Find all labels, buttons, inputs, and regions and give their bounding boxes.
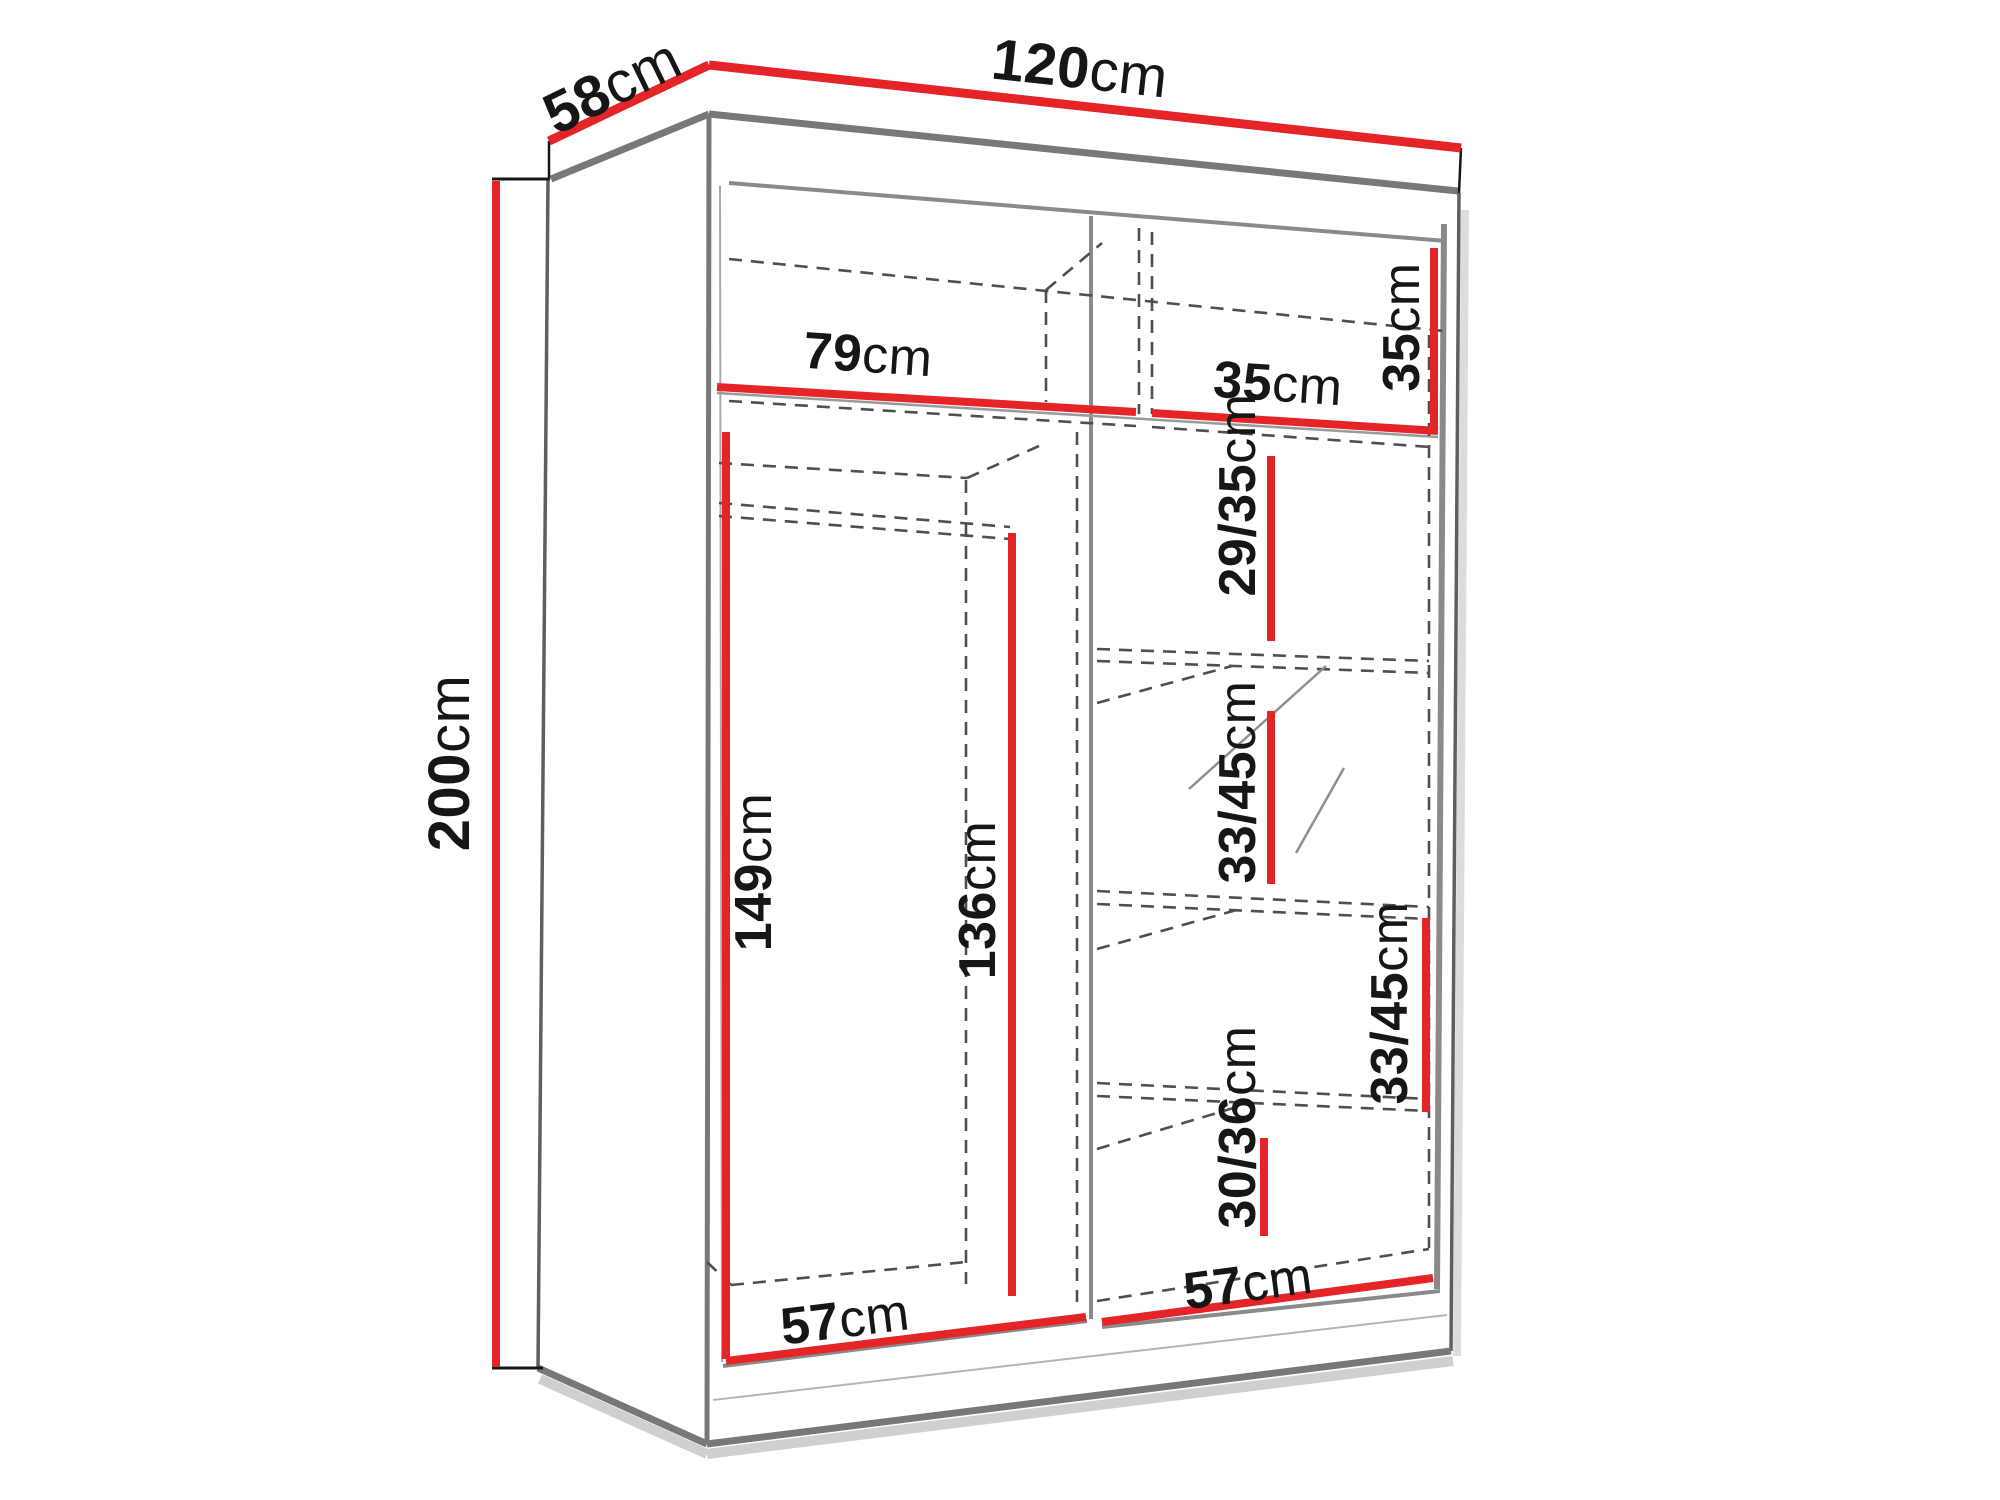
hidden-edge — [731, 1262, 966, 1285]
hidden-edge — [967, 446, 1039, 478]
shelf-section-1-label: 29/35cm — [1209, 394, 1267, 597]
interior-left-wall — [720, 186, 722, 1362]
top-left-width-label: 79cm — [802, 322, 935, 388]
shadow — [540, 1379, 707, 1454]
dimension-labels: 58cm 120cm 200cm 79cm 35cm 35cm 29/35cm … — [417, 25, 1432, 1356]
top-panel-under-edge-front — [709, 114, 1458, 191]
interior-right-wall — [1437, 224, 1444, 1289]
height-label: 200cm — [417, 675, 482, 852]
front-left-edge — [707, 114, 709, 1442]
shelf-section-4-label: 30/36cm — [1209, 1026, 1267, 1229]
back-left-edge — [538, 179, 548, 1368]
bottom-left-panel-edge — [538, 1368, 707, 1444]
right-floor-width-label: 57cm — [1180, 1247, 1316, 1322]
cabinet-structure — [538, 114, 1459, 1444]
shelf-hidden-edge — [1097, 649, 1429, 661]
bottom-front-edge — [707, 1351, 1451, 1444]
hidden-edge — [729, 259, 1444, 331]
top-section-height-label: 35cm — [1373, 262, 1431, 391]
shadow — [707, 1361, 1453, 1454]
dimension-lines — [492, 65, 1461, 1368]
diagram-canvas: 58cm 120cm 200cm 79cm 35cm 35cm 29/35cm … — [0, 0, 2000, 1500]
top-left-width-line — [717, 387, 1136, 412]
hanging-height-label: 136cm — [949, 821, 1007, 980]
dimension-tick — [1459, 148, 1461, 193]
shelf-section-2-label: 33/45cm — [1209, 681, 1267, 884]
hidden-edge — [1046, 243, 1102, 290]
shelf-hidden-edge — [1097, 909, 1240, 949]
wardrobe-dimension-diagram: 58cm 120cm 200cm 79cm 35cm 35cm 29/35cm … — [0, 0, 2000, 1500]
shelf-section-3-label: 33/45cm — [1361, 902, 1419, 1105]
interior-ceiling-edge — [729, 183, 1446, 241]
shelf-hidden-edge — [1097, 661, 1429, 673]
left-opening-height-label: 149cm — [725, 793, 783, 952]
hidden-edge — [719, 463, 967, 478]
mirror-mark — [1296, 768, 1344, 853]
